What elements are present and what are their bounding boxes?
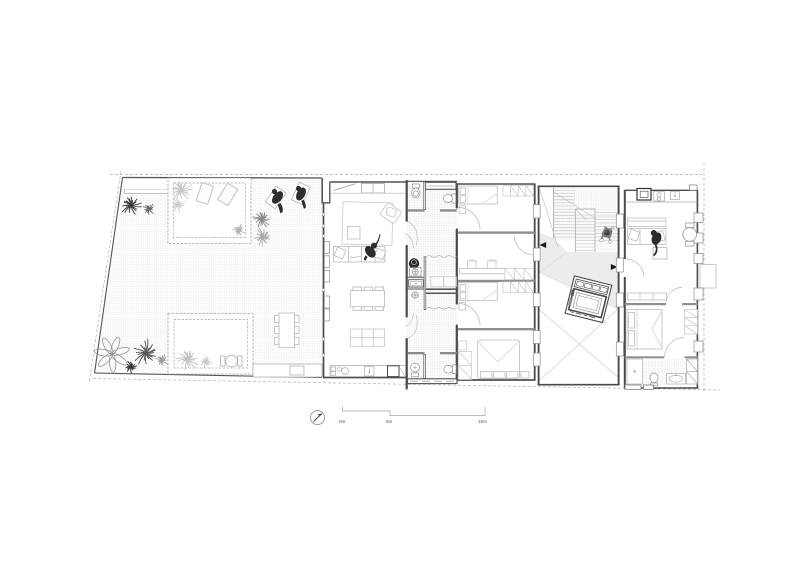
svg-text:15m: 15m	[478, 419, 487, 424]
svg-text:0m: 0m	[339, 419, 346, 424]
svg-text:5m: 5m	[386, 419, 393, 424]
